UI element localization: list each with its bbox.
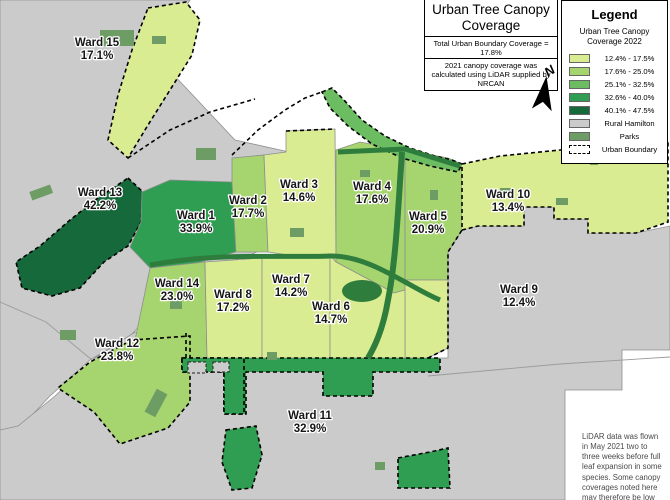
map-title: Urban Tree Canopy Coverage [424,0,558,37]
legend-item: 32.6% - 40.0% [566,91,663,104]
label-ward-4: Ward 417.6% [353,181,392,206]
north-letter: N [541,62,558,80]
golf-hole-1 [188,362,206,373]
legend-title: Legend [566,7,663,22]
label-ward-6: Ward 614.7% [312,301,350,326]
label-ward-13: Ward 1342.2% [78,187,122,212]
label-ward-5: Ward 520.9% [409,211,448,236]
label-ward-15: Ward 1517.1% [75,37,120,62]
legend-item-label: 17.6% - 25.0% [596,67,663,76]
legend-item: Rural Hamilton [566,117,663,130]
color-swatch [569,119,590,128]
color-swatch [569,67,590,76]
legend-item: 17.6% - 25.0% [566,65,663,78]
label-ward-1: Ward 133.9% [177,210,216,235]
valley-park-blob [342,280,382,302]
north-arrow-glyph [532,75,557,111]
golf-hole-2 [213,362,229,372]
legend-item-label: Rural Hamilton [596,119,663,128]
legend-item-label: Urban Boundary [596,145,663,154]
legend-item-label: 40.1% - 47.5% [596,106,663,115]
label-ward-11: Ward 1132.9% [288,410,332,435]
legend-item-label: 25.1% - 32.5% [596,80,663,89]
legend-items: 12.4% - 17.5%17.6% - 25.0%25.1% - 32.5%3… [566,52,663,156]
legend-item-label: Parks [596,132,663,141]
lidar-disclaimer-note: LiDAR data was flown in May 2021 two to … [582,432,666,500]
color-swatch [569,54,590,63]
label-ward-9: Ward 912.4% [500,284,538,309]
legend-subtitle: Urban Tree Canopy Coverage 2022 [566,27,663,47]
color-swatch [569,93,590,102]
label-ward-14: Ward 1423.0% [155,278,200,303]
legend-item: Urban Boundary [566,143,663,156]
north-arrow: N [520,62,566,118]
color-swatch [569,80,590,89]
label-ward-7: Ward 714.2% [272,274,310,299]
label-ward-2: Ward 217.7% [229,195,267,220]
label-ward-8: Ward 817.2% [214,289,253,314]
label-ward-3: Ward 314.6% [280,179,318,204]
dashed-boundary-swatch [569,145,590,154]
color-swatch [569,132,590,141]
legend-item: 40.1% - 47.5% [566,104,663,117]
color-swatch [569,106,590,115]
legend-panel: Legend Urban Tree Canopy Coverage 2022 1… [561,0,668,164]
total-coverage-note: Total Urban Boundary Coverage = 17.8% [424,36,558,59]
label-ward-10: Ward 1013.4% [486,189,530,214]
legend-item-label: 12.4% - 17.5% [596,54,663,63]
label-ward-12: Ward 1223.8% [95,338,139,363]
legend-item-label: 32.6% - 40.0% [596,93,663,102]
legend-item: 12.4% - 17.5% [566,52,663,65]
legend-item: Parks [566,130,663,143]
legend-item: 25.1% - 32.5% [566,78,663,91]
map-page: Ward 1517.1%Ward 1342.2%Ward 133.9%Ward … [0,0,670,500]
